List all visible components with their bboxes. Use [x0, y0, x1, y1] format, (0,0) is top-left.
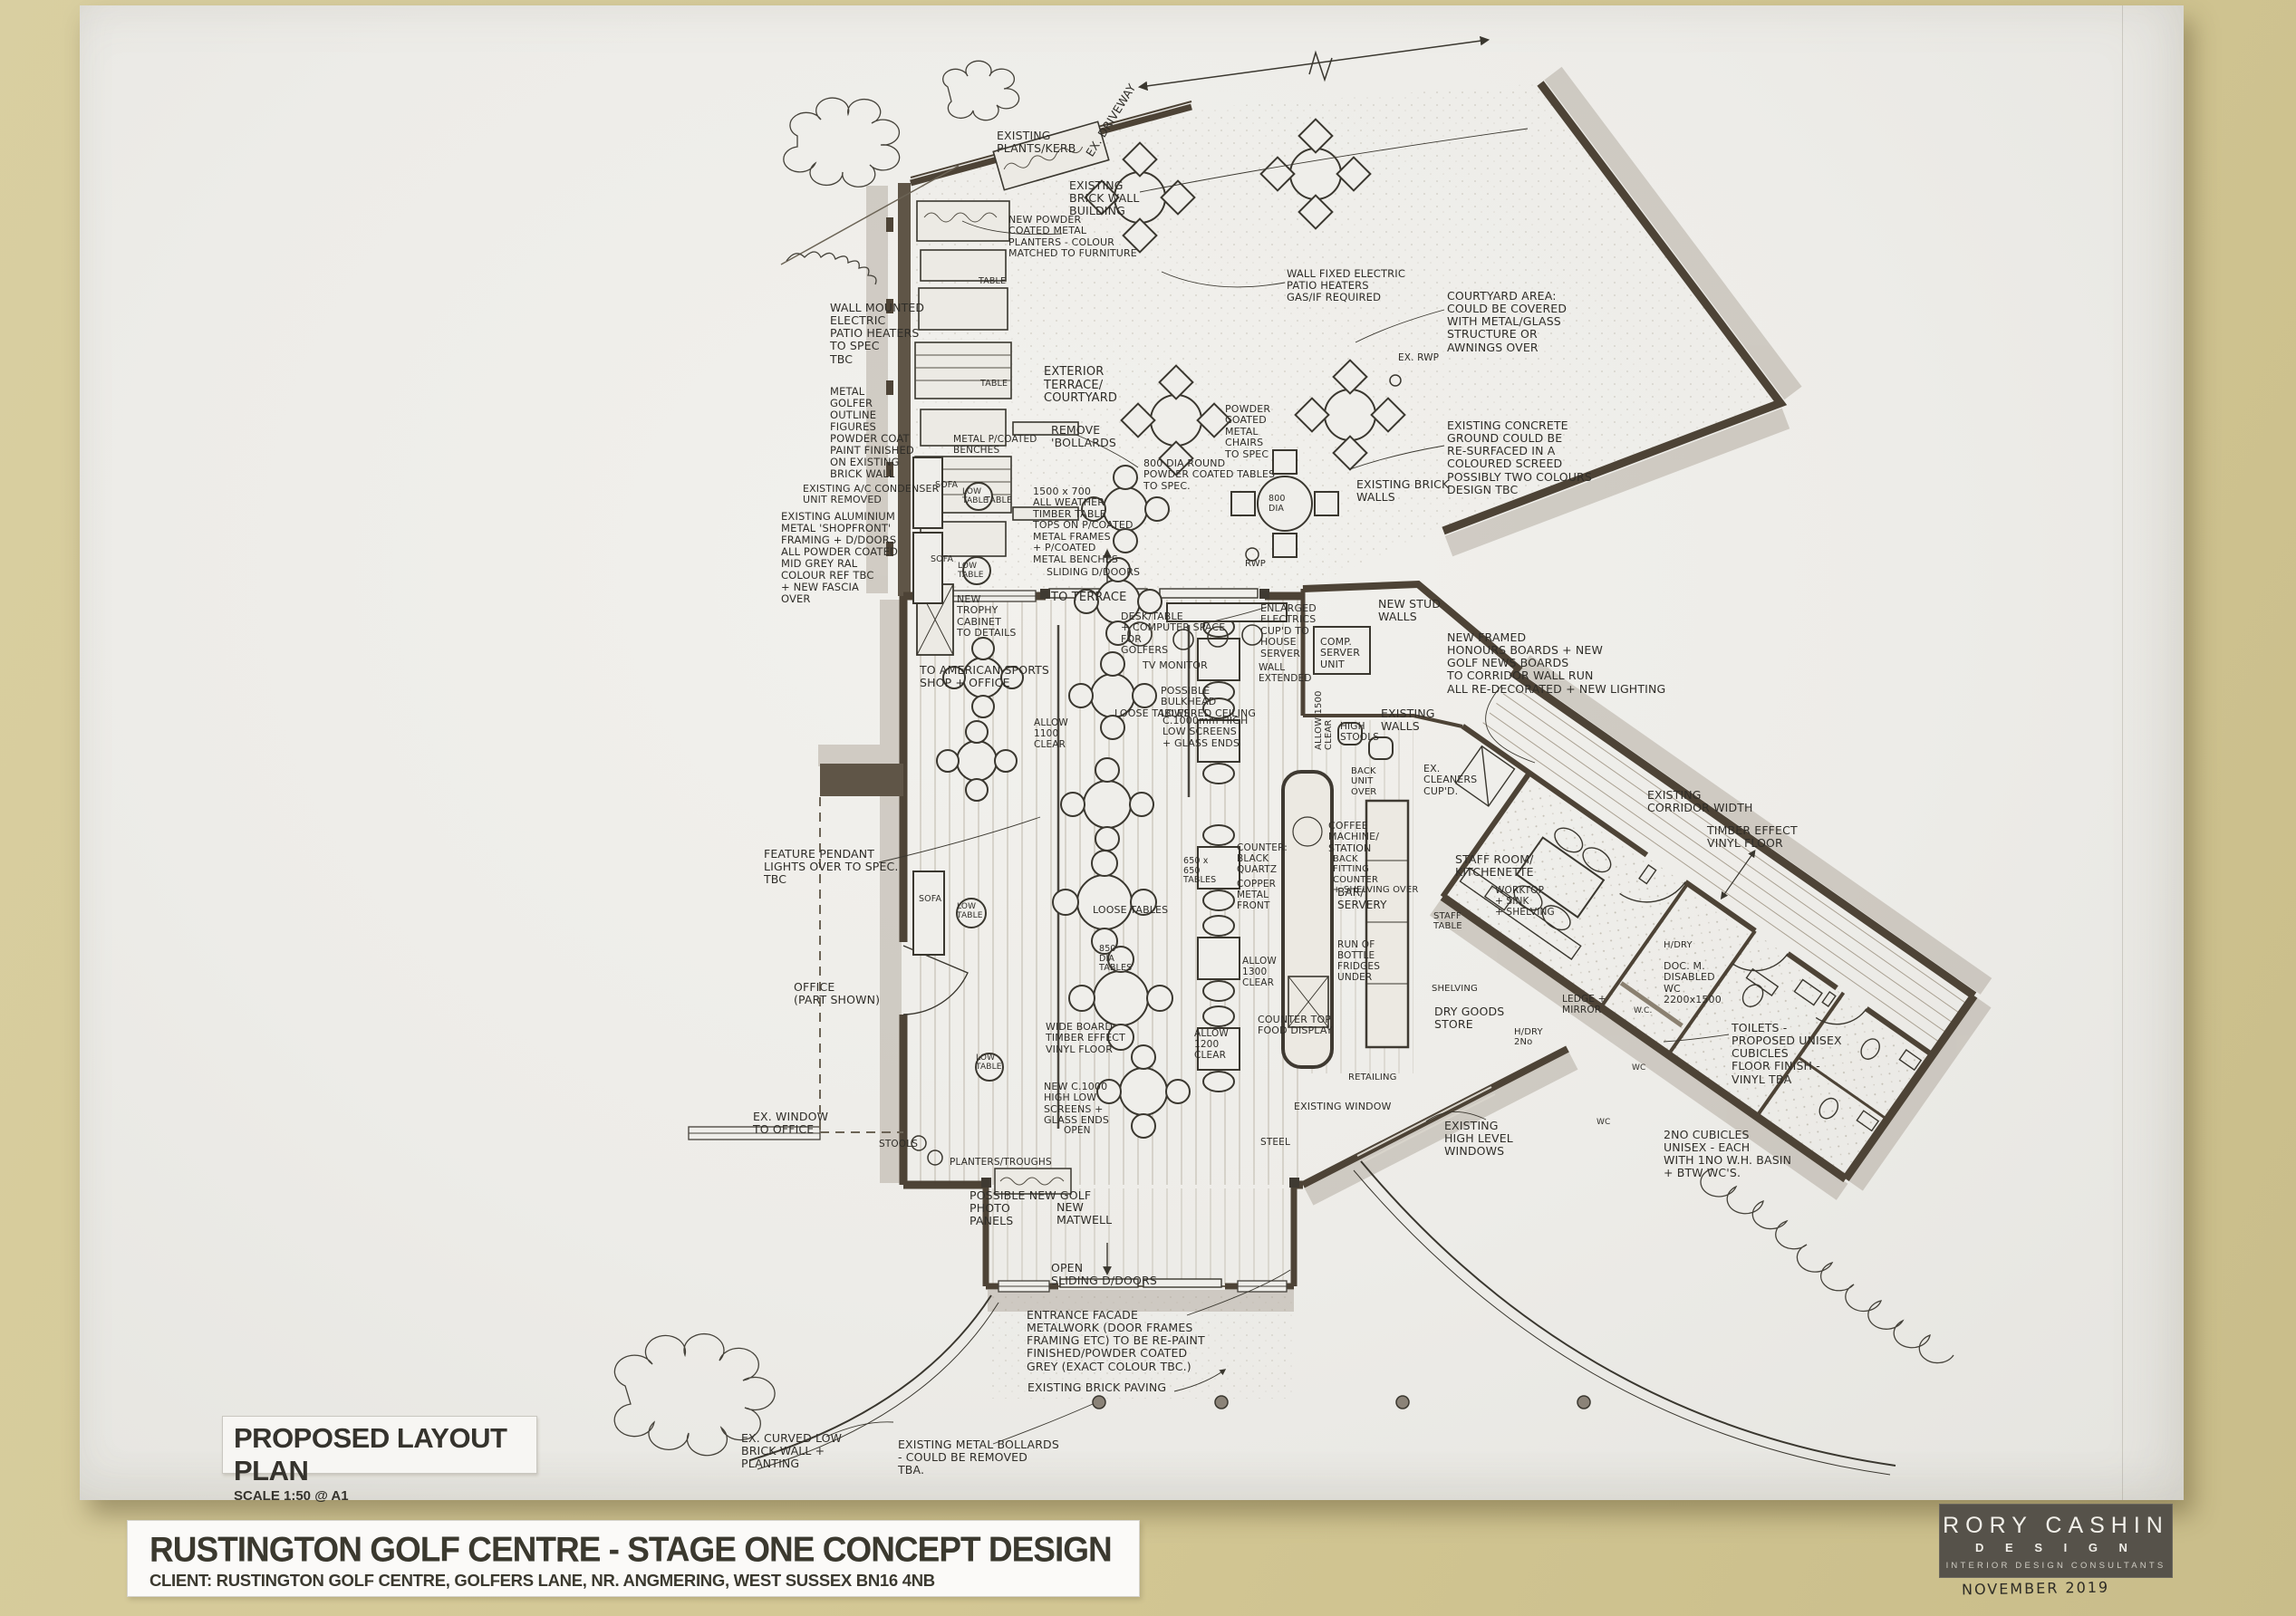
plan-annotation: LOW TABLE: [962, 487, 989, 505]
plan-annotation: FEATURE PENDANT LIGHTS OVER TO SPEC. TBC: [764, 848, 899, 886]
plan-annotation: WALL EXTENDED: [1259, 663, 1312, 685]
plan-annotation: RUN OF BOTTLE FRIDGES UNDER: [1337, 940, 1380, 983]
plan-annotation: EXISTING BRICK PAVING: [1027, 1381, 1166, 1394]
plan-annotation: LOOSE TABLES: [1114, 708, 1190, 719]
plan-annotation: SOFA: [935, 481, 958, 491]
plan-annotation: COPPER METAL FRONT: [1237, 880, 1276, 912]
plan-annotation: SLIDING D/DOORS: [1047, 567, 1140, 578]
plan-annotation: BACK UNIT OVER: [1351, 766, 1376, 797]
banner-client: CLIENT: RUSTINGTON GOLF CENTRE, GOLFERS …: [150, 1571, 1139, 1591]
plan-annotation: EXISTING BRICK WALLS: [1356, 478, 1449, 504]
plan-annotation: POWDER COATED METAL CHAIRS TO SPEC: [1225, 404, 1270, 460]
plan-annotation: OPEN SLIDING D/DOORS: [1051, 1262, 1157, 1287]
plan-annotation: EXISTING BRICK WALL BUILDING: [1069, 179, 1140, 217]
annotation-layer: EXISTING PLANTS/KERBEX. DRIVEWAYEXISTING…: [0, 0, 2296, 1616]
plan-annotation: EX. RWP: [1398, 353, 1439, 364]
plan-annotation: 850 DIA TABLES: [1099, 945, 1132, 974]
plan-annotation: NEW C.1000 HIGH LOW SCREENS + GLASS ENDS: [1044, 1082, 1109, 1127]
plan-annotation: TABLE: [979, 277, 1006, 287]
plan-annotation: ALLOW 1200 CLEAR: [1194, 1029, 1229, 1062]
plan-annotation: COUNTER TOP FOOD DISPLAY: [1258, 1015, 1333, 1037]
plan-annotation: RWP: [1245, 559, 1266, 569]
plan-annotation: WC: [1597, 1118, 1610, 1127]
plan-annotation: WALL MOUNTED ELECTRIC PATIO HEATERS TO S…: [830, 302, 924, 366]
plan-annotation: TABLE: [980, 380, 1008, 390]
plan-annotation: DRY GOODS STORE: [1434, 1005, 1504, 1031]
plan-annotation: TIMBER EFFECT VINYL FLOOR: [1707, 824, 1798, 850]
plan-annotation: STOOLS: [879, 1140, 918, 1150]
plan-annotation: PLANTERS/TROUGHS: [950, 1158, 1052, 1169]
plan-annotation: EXISTING METAL BOLLARDS - COULD BE REMOV…: [898, 1438, 1059, 1477]
title-block: PROPOSED LAYOUT PLAN SCALE 1:50 @ A1: [222, 1416, 537, 1474]
plan-annotation: EXISTING HIGH LEVEL WINDOWS: [1444, 1120, 1513, 1158]
plan-annotation: NEW STUD WALLS: [1378, 598, 1441, 623]
plan-annotation: STAFF TABLE: [1433, 911, 1462, 932]
plan-annotation: DOC. M. DISABLED WC 2200x1500: [1664, 961, 1722, 1006]
plan-annotation: ENTRANCE FACADE METALWORK (DOOR FRAMES F…: [1027, 1309, 1205, 1373]
plan-annotation: SOFA: [919, 895, 941, 905]
plan-annotation: COURTYARD AREA: COULD BE COVERED WITH ME…: [1447, 290, 1567, 354]
plan-annotation: NEW POWDER COATED METAL PLANTERS - COLOU…: [1008, 215, 1137, 260]
plan-annotation: TO AMERICAN SPORTS SHOP + OFFICE: [920, 664, 1049, 689]
plan-annotation: 2NO CUBICLES UNISEX - EACH WITH 1NO W.H.…: [1664, 1129, 1791, 1180]
banner-title: RUSTINGTON GOLF CENTRE - STAGE ONE CONCE…: [150, 1530, 1139, 1570]
plan-annotation: EX. CLEANERS CUP'D.: [1423, 764, 1477, 797]
plan-annotation: SOFA: [931, 555, 953, 565]
plan-annotation: NEW FRAMED HONOURS BOARDS + NEW GOLF NEW…: [1447, 631, 1665, 696]
plan-annotation: ALLOW 1500 CLEAR: [1314, 690, 1335, 750]
plan-annotation: 800 DIA ROUND POWDER COATED TABLES TO SP…: [1143, 458, 1275, 492]
plan-annotation: ENLARGED ELECTRICS CUP'D TO HOUSE SERVER: [1260, 603, 1317, 659]
plan-annotation: H/DRY: [1664, 940, 1693, 950]
project-banner: RUSTINGTON GOLF CENTRE - STAGE ONE CONCE…: [127, 1520, 1140, 1597]
plan-annotation: OFFICE (PART SHOWN): [794, 981, 880, 1006]
plan-annotation: COMP. SERVER UNIT: [1320, 637, 1360, 670]
plan-annotation: STAFF ROOM/ KITCHENETTE: [1455, 853, 1534, 879]
plan-annotation: WC: [1632, 1063, 1645, 1073]
plan-annotation: EXISTING PLANTS/KERB: [997, 130, 1076, 155]
plan-date: NOVEMBER 2019: [1962, 1579, 2109, 1599]
plan-annotation: EXTERIOR TERRACE/ COURTYARD: [1044, 366, 1117, 406]
plan-annotation: 1500 x 700 ALL WEATHER TIMBER TABLE TOPS…: [1033, 486, 1134, 565]
plan-annotation: EXISTING WALLS: [1381, 707, 1435, 733]
plan-annotation: BAR/ SERVERY: [1337, 887, 1387, 911]
plan-annotation: COUNTER: BLACK QUARTZ: [1237, 843, 1288, 876]
title-block-title: PROPOSED LAYOUT PLAN: [234, 1422, 526, 1487]
logo-sub: D E S I G N: [1975, 1541, 2137, 1554]
plan-annotation: H/DRY 2No: [1514, 1027, 1543, 1048]
plan-annotation: EXISTING WINDOW: [1294, 1101, 1392, 1112]
plan-annotation: ALLOW 1100 CLEAR: [1034, 718, 1068, 751]
plan-annotation: EX. CURVED LOW BRICK WALL + PLANTING: [741, 1432, 842, 1470]
plan-annotation: EX. WINDOW TO OFFICE: [753, 1111, 828, 1136]
logo-tagline: INTERIOR DESIGN CONSULTANTS: [1946, 1561, 2166, 1571]
plan-annotation: EXISTING CONCRETE GROUND COULD BE RE-SUR…: [1447, 419, 1592, 496]
plan-annotation: EXISTING CORRIDOR WIDTH: [1647, 789, 1753, 814]
plan-annotation: WALL FIXED ELECTRIC PATIO HEATERS GAS/IF…: [1287, 268, 1405, 303]
plan-annotation: LOW TABLE: [957, 902, 983, 920]
plan-annotation: NEW MATWELL: [1056, 1201, 1112, 1226]
plan-annotation: C.1000mm HIGH LOW SCREENS + GLASS ENDS: [1162, 716, 1248, 749]
plan-annotation: METAL GOLFER OUTLINE FIGURES POWDER COAT…: [830, 386, 914, 480]
plan-annotation: OPEN: [1064, 1126, 1091, 1137]
plan-annotation: W.C.: [1634, 1006, 1652, 1015]
plan-annotation: REMOVE 'BOLLARDS: [1051, 424, 1116, 449]
drawing-board: { "title_block": { "title": "PROPOSED LA…: [0, 0, 2296, 1616]
plan-annotation: LEDGE + MIRROR: [1562, 995, 1606, 1016]
plan-annotation: STEEL: [1260, 1138, 1290, 1149]
title-block-scale: SCALE 1:50 @ A1: [234, 1488, 526, 1504]
plan-annotation: EXISTING ALUMINIUM METAL 'SHOPFRONT' FRA…: [781, 511, 898, 605]
plan-annotation: WIDE BOARD TIMBER EFFECT VINYL FLOOR: [1046, 1022, 1125, 1055]
logo-name: RORY CASHIN: [1943, 1513, 2169, 1539]
plan-annotation: HIGH STOOLS: [1340, 722, 1379, 744]
plan-annotation: 800 DIA: [1269, 495, 1286, 514]
plan-annotation: TOILETS - PROPOSED UNISEX CUBICLES FLOOR…: [1732, 1022, 1842, 1086]
plan-annotation: COFFEE MACHINE/ STATION: [1328, 821, 1379, 854]
plan-annotation: RETAILING: [1348, 1073, 1397, 1082]
plan-annotation: TO TERRACE: [1051, 592, 1126, 605]
plan-annotation: WORKTOP + SINK + SHELVING: [1495, 886, 1555, 919]
plan-annotation: LOW TABLE: [958, 562, 984, 580]
plan-annotation: LOOSE TABLES: [1093, 905, 1168, 916]
plan-annotation: DESK/TABLE + COMPUTER SPACE FOR GOLFERS: [1121, 611, 1225, 657]
plan-annotation: 650 x 650 TABLES: [1183, 857, 1216, 886]
plan-annotation: EXISTING A/C CONDENSER UNIT REMOVED: [803, 484, 939, 506]
plan-annotation: NEW TROPHY CABINET TO DETAILS: [957, 594, 1017, 640]
plan-annotation: ALLOW 1300 CLEAR: [1242, 957, 1277, 989]
plan-annotation: TV MONITOR: [1143, 660, 1208, 671]
plan-annotation: EX. DRIVEWAY: [1084, 82, 1138, 159]
designer-logo: RORY CASHIN D E S I G N INTERIOR DESIGN …: [1939, 1504, 2173, 1578]
plan-annotation: SHELVING: [1432, 984, 1478, 994]
plan-annotation: TABLE: [985, 496, 1012, 506]
plan-annotation: LOW TABLE: [976, 1053, 1002, 1072]
plan-annotation: METAL P/COATED BENCHES: [953, 435, 1037, 457]
